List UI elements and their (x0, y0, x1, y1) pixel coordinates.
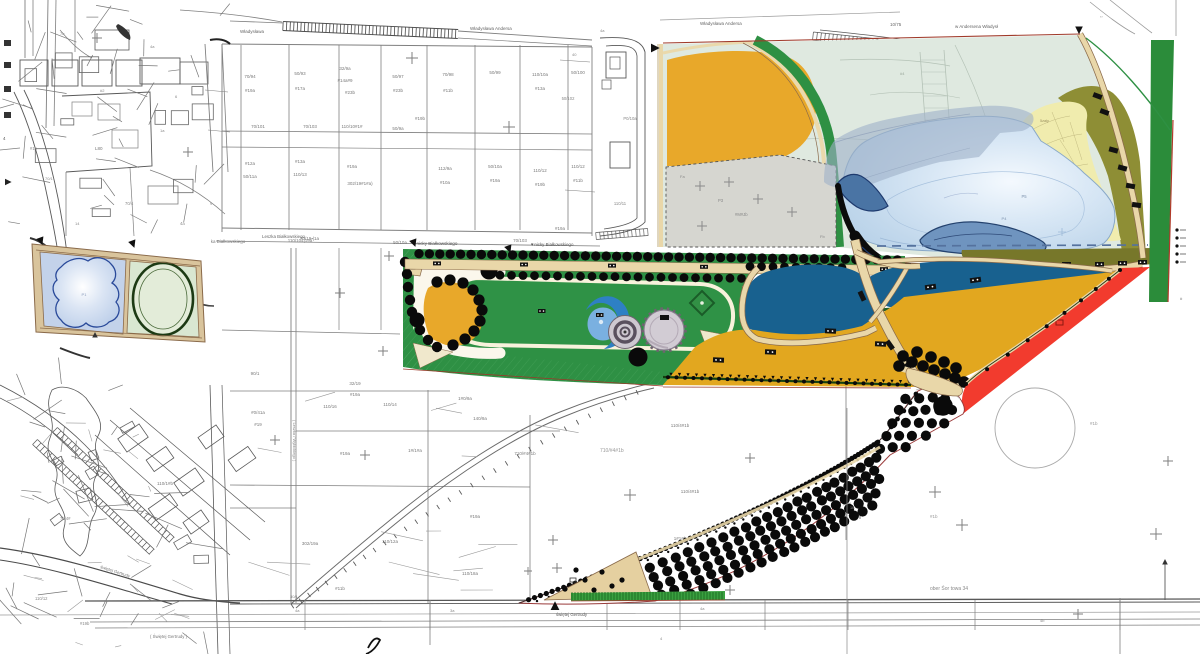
svg-text:140/9a: 140/9a (473, 416, 487, 421)
svg-text:110/14: 110/14 (383, 402, 397, 407)
svg-text:70/1: 70/1 (45, 176, 54, 181)
svg-text:70/103: 70/103 (303, 124, 317, 129)
svg-text:#19a: #19a (470, 514, 481, 519)
svg-text:112/9a: 112/9a (438, 166, 452, 171)
svg-text:ober Śor towa 34: ober Śor towa 34 (930, 584, 968, 592)
svg-text:302/19#1#a): 302/19#1#a) (347, 181, 373, 186)
svg-text:70/101: 70/101 (251, 124, 265, 129)
svg-text:▼nicky Białkowskiego: ▼nicky Białkowskiego (530, 242, 574, 247)
svg-text:4a: 4a (150, 44, 155, 49)
svg-text:#19a: #19a (245, 88, 256, 93)
svg-text:Władysława Andersa: Władysława Andersa (470, 26, 512, 31)
svg-text:7b: 7b (60, 31, 65, 36)
svg-text:70/94: 70/94 (244, 74, 256, 79)
svg-text:#23b: #23b (393, 88, 404, 93)
svg-text:1b: 1b (850, 506, 854, 510)
svg-text:10/75: 10/75 (890, 22, 902, 27)
svg-text:#1b: #1b (930, 514, 938, 519)
svg-text:Władysława: Władysława (240, 29, 265, 34)
svg-text:#19a: #19a (347, 164, 358, 169)
svg-text:110/12: 110/12 (571, 164, 585, 169)
svg-text:70/103: 70/103 (513, 238, 527, 243)
svg-text:110/4#1b: 110/4#1b (671, 423, 690, 428)
svg-text:#19b: #19b (80, 621, 90, 626)
svg-text:#M#Jb: #M#Jb (735, 212, 748, 217)
svg-text:#1b: #1b (1090, 421, 1098, 426)
svg-text:110/1#b: 110/1#b (157, 481, 173, 486)
svg-text:50/102: 50/102 (562, 96, 575, 101)
svg-text:3a: 3a (450, 608, 455, 613)
svg-text:40: 40 (572, 52, 577, 57)
svg-text:#19: #19 (254, 422, 262, 427)
svg-text:110/16: 110/16 (323, 404, 337, 409)
svg-text:110/12: 110/12 (533, 168, 547, 173)
svg-text:L80: L80 (95, 146, 103, 151)
svg-text:Władysława Andersa: Władysława Andersa (700, 21, 742, 26)
svg-text:#19b: #19b (415, 116, 426, 121)
svg-text:32/9a: 32/9a (339, 66, 351, 71)
svg-text:#23b: #23b (345, 90, 356, 95)
svg-text:50/10a: 50/10a (393, 240, 407, 245)
svg-text:50/10a: 50/10a (488, 164, 502, 169)
svg-text:w Andersena Władysł: w Andersena Władysł (955, 24, 998, 29)
svg-text:32/19: 32/19 (349, 381, 361, 386)
svg-text:#19a: #19a (555, 226, 566, 231)
svg-text:110/12: 110/12 (35, 596, 48, 601)
svg-text:#11b: #11b (443, 88, 453, 93)
svg-text:50/93: 50/93 (294, 71, 306, 76)
svg-text:110/18a: 110/18a (462, 571, 478, 576)
svg-text:710/#4#1b: 710/#4#1b (600, 448, 624, 454)
svg-text:#19a: #19a (490, 178, 501, 183)
svg-text:110/13: 110/13 (293, 172, 307, 177)
svg-text:świętej Gertrudy: świętej Gertrudy (556, 612, 588, 617)
svg-text:1a: 1a (160, 128, 165, 133)
svg-text:50/99: 50/99 (489, 70, 501, 75)
svg-text:P1: P1 (82, 292, 88, 297)
svg-text:P0/10a: P0/10a (623, 116, 637, 121)
svg-text:5zały: 5zały (1040, 119, 1049, 123)
svg-text:#17a: #17a (295, 86, 306, 91)
svg-text:110/4#1b: 110/4#1b (681, 489, 700, 494)
svg-text:#4: #4 (900, 71, 905, 76)
svg-text:#14a#9: #14a#9 (337, 78, 353, 83)
svg-text:302/19a: 302/19a (302, 541, 319, 546)
svg-text:110/10#1#: 110/10#1# (342, 124, 363, 129)
svg-text:4a: 4a (180, 221, 185, 226)
svg-text:( Świętej Gertrudy ): ( Świętej Gertrudy ) (150, 634, 188, 639)
svg-text:30/1: 30/1 (290, 594, 299, 599)
svg-text:ka Białkowskiego: ka Białkowskiego (211, 239, 246, 244)
svg-text:#2: #2 (100, 88, 105, 93)
svg-text:#11b: #11b (335, 586, 345, 591)
svg-text:4b: 4b (1040, 618, 1045, 623)
svg-text:P5: P5 (1021, 194, 1027, 199)
svg-text:50/100: 50/100 (571, 70, 585, 75)
svg-text:50/97: 50/97 (392, 74, 404, 79)
svg-text:Fa: Fa (680, 174, 685, 179)
svg-text:#13a: #13a (295, 159, 306, 164)
svg-text:▼nicky Białkowskiego: ▼nicky Białkowskiego (412, 241, 458, 246)
svg-text:70/4: 70/4 (125, 201, 134, 206)
svg-text:4a: 4a (700, 606, 705, 611)
svg-text:Fb: Fb (820, 234, 825, 239)
svg-text:#0/41a: #0/41a (251, 410, 265, 415)
svg-text:#11b: #11b (573, 178, 583, 183)
svg-text:110/10a: 110/10a (532, 72, 548, 77)
svg-text:1#0/9a: 1#0/9a (458, 396, 472, 401)
svg-text:#19a: #19a (350, 392, 361, 397)
svg-text:70/98: 70/98 (442, 72, 454, 77)
svg-text:( Leszka / Wybickiego ): ( Leszka / Wybickiego ) (292, 420, 297, 462)
svg-text:#10a: #10a (440, 180, 451, 185)
svg-text:#12a: #12a (245, 161, 256, 166)
svg-text:90/1: 90/1 (251, 371, 260, 376)
svg-text:1#/1#a: 1#/1#a (408, 448, 422, 453)
svg-text:50/11a: 50/11a (243, 174, 257, 179)
svg-text:Leszka Białkowskiego: Leszka Białkowskiego (262, 234, 306, 239)
svg-text:P3: P3 (718, 198, 724, 203)
svg-text:P4: P4 (1002, 216, 1008, 221)
svg-text:14: 14 (75, 221, 80, 226)
svg-text:#13a: #13a (535, 86, 546, 91)
svg-text:#19b: #19b (535, 182, 546, 187)
svg-text:4a: 4a (600, 28, 605, 33)
svg-text:#19a: #19a (340, 451, 351, 456)
svg-text:50/9a: 50/9a (392, 126, 404, 131)
svg-text:110/11: 110/11 (614, 201, 627, 206)
svg-text:4a: 4a (295, 608, 300, 613)
